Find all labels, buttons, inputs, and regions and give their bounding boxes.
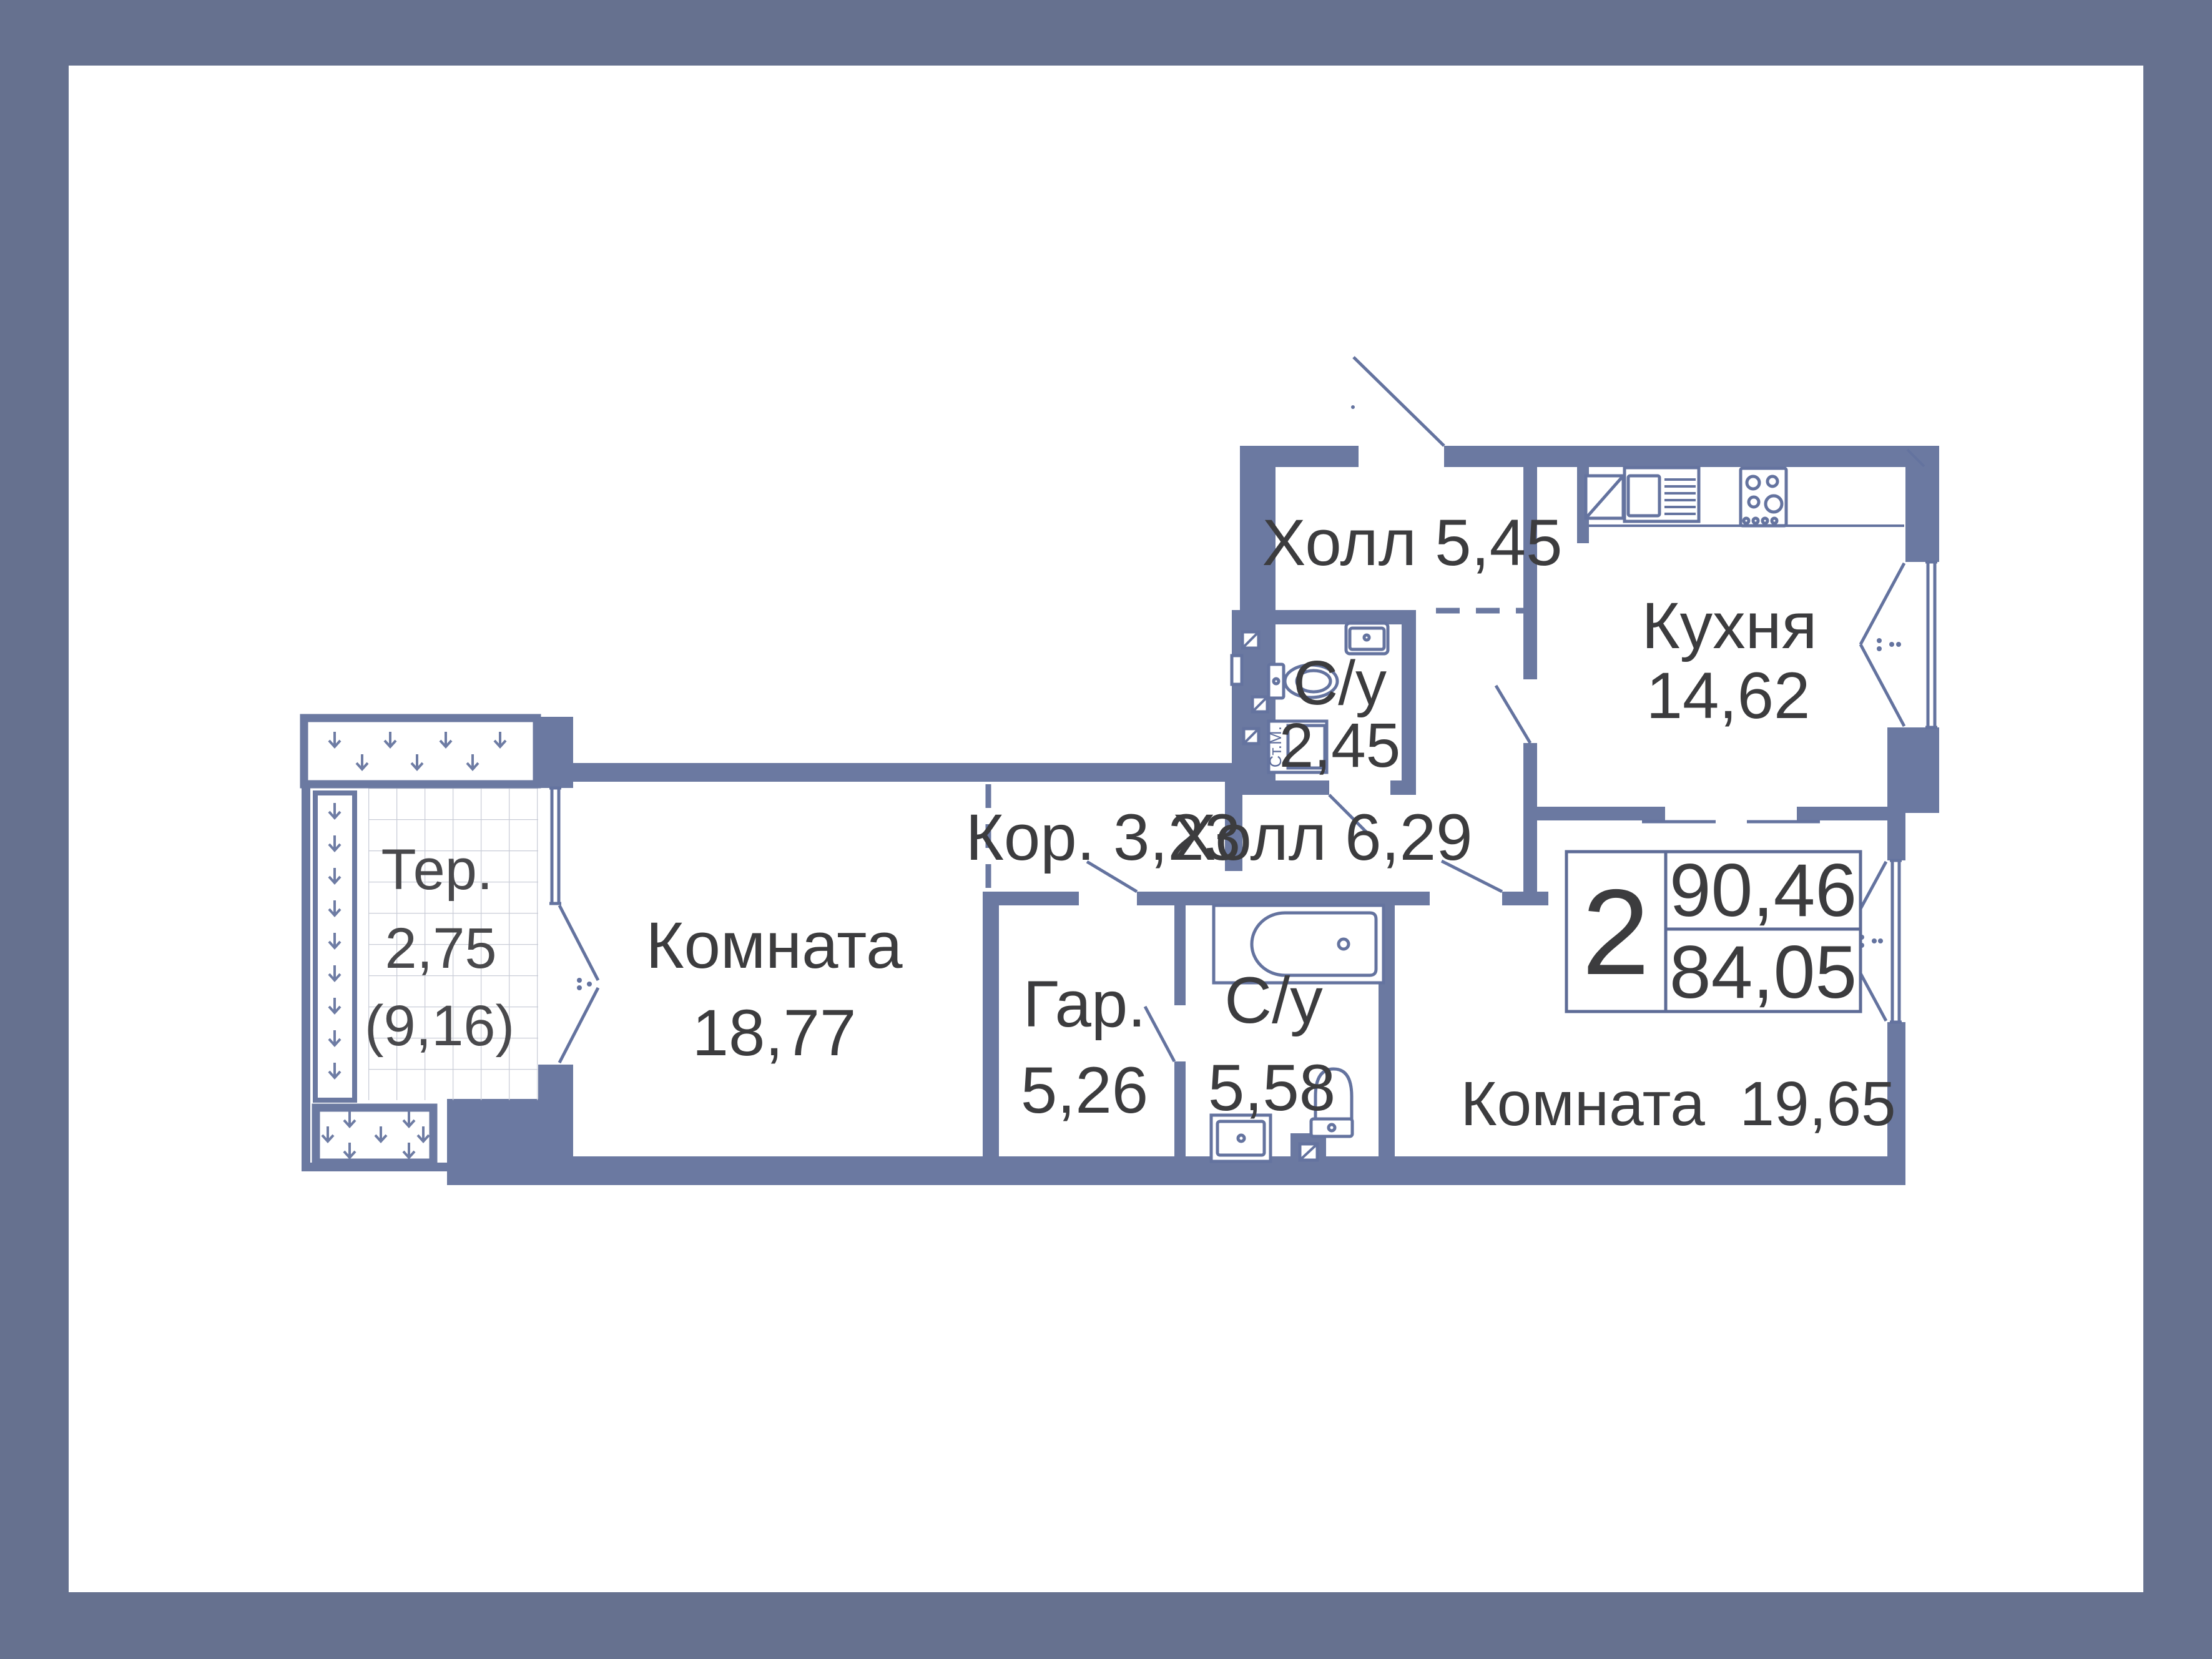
- label-terrace-area: 2,75: [385, 917, 496, 980]
- info-rooms-count: 2: [1582, 864, 1649, 1000]
- label-su245-area: 2,45: [1279, 711, 1401, 780]
- label-room1: Комната: [646, 909, 903, 982]
- planter-top: [304, 718, 537, 784]
- label-kitchen-area: 14,62: [1646, 659, 1811, 732]
- label-su558-area: 5,58: [1208, 1051, 1335, 1125]
- label-su245: С/у: [1293, 648, 1387, 718]
- vent-shaft-icon: [1300, 1144, 1317, 1160]
- label-gar-area: 5,26: [1021, 1054, 1148, 1127]
- label-room2: Комната 19,65: [1460, 1069, 1895, 1139]
- label-kitchen: Кухня: [1641, 589, 1817, 662]
- stove-icon: [1741, 468, 1786, 526]
- floor-plan-page: Ст.М.: [0, 0, 2212, 1659]
- label-terrace: Тер.: [381, 838, 493, 902]
- label-terrace-area-full: (9,16): [365, 994, 514, 1058]
- label-room1-area: 18,77: [692, 997, 857, 1070]
- label-gar: Гар.: [1023, 968, 1146, 1041]
- label-su558: С/у: [1224, 964, 1323, 1037]
- planter-bottom: [316, 1108, 433, 1163]
- vent-shaft-icon: [1586, 476, 1623, 518]
- apartment-info-box: 2 90,46 84,05: [1566, 849, 1861, 1014]
- floor-plan-svg: Ст.М.: [0, 0, 2212, 1659]
- label-cor-323: Кор. 3,23: [966, 801, 1241, 874]
- label-hall-545: Холл 5,45: [1262, 506, 1562, 579]
- info-living-area: 84,05: [1669, 930, 1857, 1014]
- kitchen-sink-icon: [1625, 468, 1699, 521]
- info-total-area: 90,46: [1669, 849, 1857, 932]
